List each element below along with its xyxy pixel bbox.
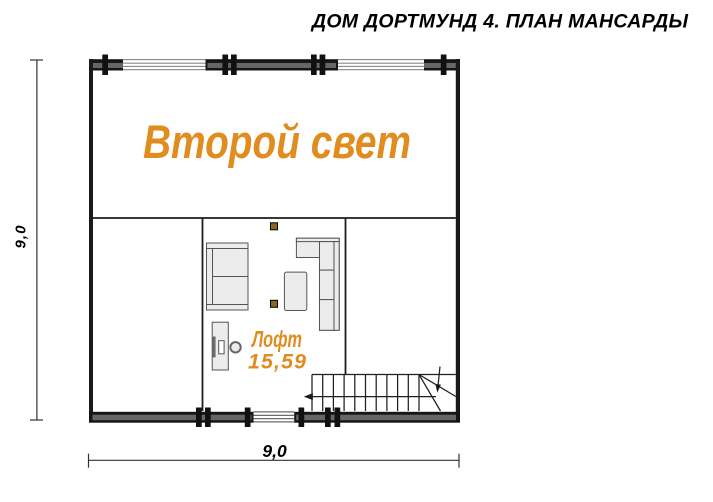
svg-text:15,59: 15,59 xyxy=(248,350,306,374)
svg-text:9,0: 9,0 xyxy=(12,225,29,249)
svg-text:ДОМ ДОРТМУНД 4. ПЛАН МАНСАРДЫ: ДОМ ДОРТМУНД 4. ПЛАН МАНСАРДЫ xyxy=(310,11,689,33)
svg-text:Второй свет: Второй свет xyxy=(143,115,411,168)
svg-text:Лофт: Лофт xyxy=(251,326,302,352)
svg-text:9,0: 9,0 xyxy=(262,441,287,461)
